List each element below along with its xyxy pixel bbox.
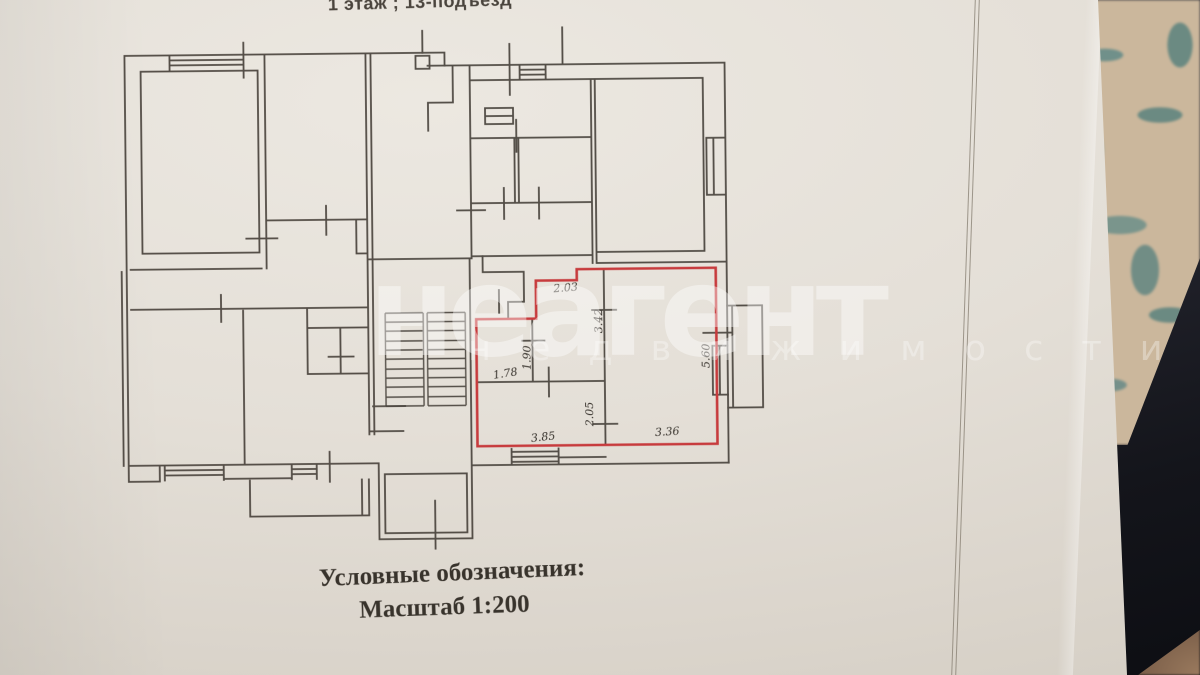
dimension-label: 2.05 [583, 402, 596, 428]
watermark-subtitle: недвижимости [468, 329, 1200, 369]
dimension-label: 3.36 [655, 425, 680, 440]
dimension-label: 3.85 [530, 429, 556, 445]
photo-of-floor-plan-document: 1 этаж ; 13-подъезд 2.03 [0, 0, 1200, 675]
